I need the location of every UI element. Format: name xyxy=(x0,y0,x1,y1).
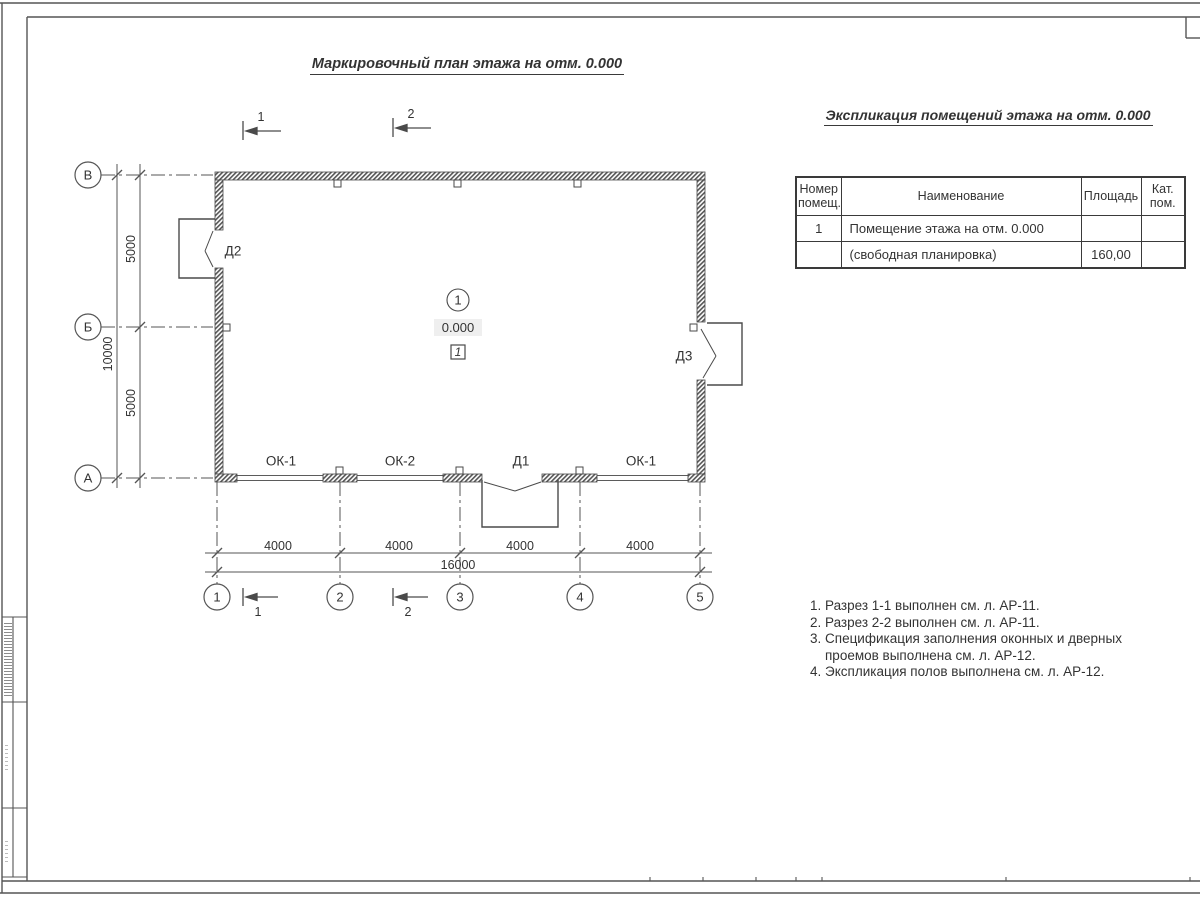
note-line: 3. Спецификация заполнения оконных и две… xyxy=(810,631,1155,648)
note-line: 2. Разрез 2-2 выполнен см. л. АР-11. xyxy=(810,615,1155,632)
cell-room-name: (свободная планировка) xyxy=(841,242,1081,269)
sheet-frame xyxy=(0,3,1200,893)
left-stamp-text xyxy=(4,622,12,696)
col-header-name: Наименование xyxy=(841,177,1081,216)
dim-4000-2: 4000 xyxy=(385,539,413,553)
explication-table: Номер помещ. Наименование Площадь Кат. п… xyxy=(795,176,1186,269)
dim-16000-total: 16000 xyxy=(441,558,476,572)
room-number: 1 xyxy=(454,293,461,308)
cell-room-category xyxy=(1141,216,1185,242)
room-floor-type: 1 xyxy=(455,345,462,359)
window-label-ok2: ОК-2 xyxy=(385,454,415,469)
cell-room-name: Помещение этажа на отм. 0.000 xyxy=(841,216,1081,242)
drawing-sheet: Маркировочный план этажа на отм. 0.000 Э… xyxy=(0,0,1200,900)
dim-4000-3: 4000 xyxy=(506,539,534,553)
table-row: 1 Помещение этажа на отм. 0.000 xyxy=(796,216,1185,242)
col-header-category: Кат. пом. xyxy=(1141,177,1185,216)
dim-5000-bottom: 5000 xyxy=(124,389,138,417)
cell-room-number: 1 xyxy=(796,216,841,242)
table-row: (свободная планировка) 160,00 xyxy=(796,242,1185,269)
axis-row-b: Б xyxy=(84,320,93,335)
col-header-area: Площадь xyxy=(1081,177,1141,216)
axis-col-2: 2 xyxy=(336,590,343,605)
dim-10000-total: 10000 xyxy=(101,337,115,372)
dim-4000-4: 4000 xyxy=(626,539,654,553)
plan-linework xyxy=(0,0,1200,900)
axis-col-1: 1 xyxy=(213,590,220,605)
note-line: проемов выполнена см. л. АР-12. xyxy=(810,648,1155,665)
dimension-lines xyxy=(112,164,712,577)
cell-room-area: 160,00 xyxy=(1081,242,1141,269)
note-line: 1. Разрез 1-1 выполнен см. л. АР-11. xyxy=(810,598,1155,615)
dim-5000-top: 5000 xyxy=(124,235,138,263)
window-label-ok1-right: ОК-1 xyxy=(626,454,656,469)
section-bottom-1: 1 xyxy=(255,605,262,619)
cell-room-category xyxy=(1141,242,1185,269)
section-top-2: 2 xyxy=(408,107,415,121)
cell-room-number xyxy=(796,242,841,269)
axis-col-5: 5 xyxy=(696,590,703,605)
explication-table-grid: Номер помещ. Наименование Площадь Кат. п… xyxy=(795,176,1186,269)
cell-room-area xyxy=(1081,216,1141,242)
room-elevation: 0.000 xyxy=(434,319,482,336)
door-label-d1: Д1 xyxy=(513,454,530,469)
note-line: 4. Экспликация полов выполнена см. л. АР… xyxy=(810,664,1155,681)
col-header-room-number: Номер помещ. xyxy=(796,177,841,216)
axis-row-v: В xyxy=(84,168,93,183)
axis-lines xyxy=(101,175,700,584)
table-title: Экспликация помещений этажа на отм. 0.00… xyxy=(808,107,1168,126)
dim-4000-1: 4000 xyxy=(264,539,292,553)
door-swings xyxy=(205,231,716,491)
section-bottom-2: 2 xyxy=(405,605,412,619)
door-label-d2: Д2 xyxy=(225,244,242,259)
section-marks xyxy=(243,118,431,606)
sheet-title: Маркировочный план этажа на отм. 0.000 xyxy=(287,56,647,75)
notes-block: 1. Разрез 1-1 выполнен см. л. АР-11. 2. … xyxy=(810,598,1155,681)
axis-col-3: 3 xyxy=(456,590,463,605)
door-label-d3: Д3 xyxy=(676,349,693,364)
section-top-1: 1 xyxy=(258,110,265,124)
window-label-ok1-left: ОК-1 xyxy=(266,454,296,469)
left-stamp-mark xyxy=(5,742,8,770)
axis-row-a: А xyxy=(84,471,93,486)
left-stamp-mark xyxy=(5,838,8,862)
axis-col-4: 4 xyxy=(576,590,583,605)
